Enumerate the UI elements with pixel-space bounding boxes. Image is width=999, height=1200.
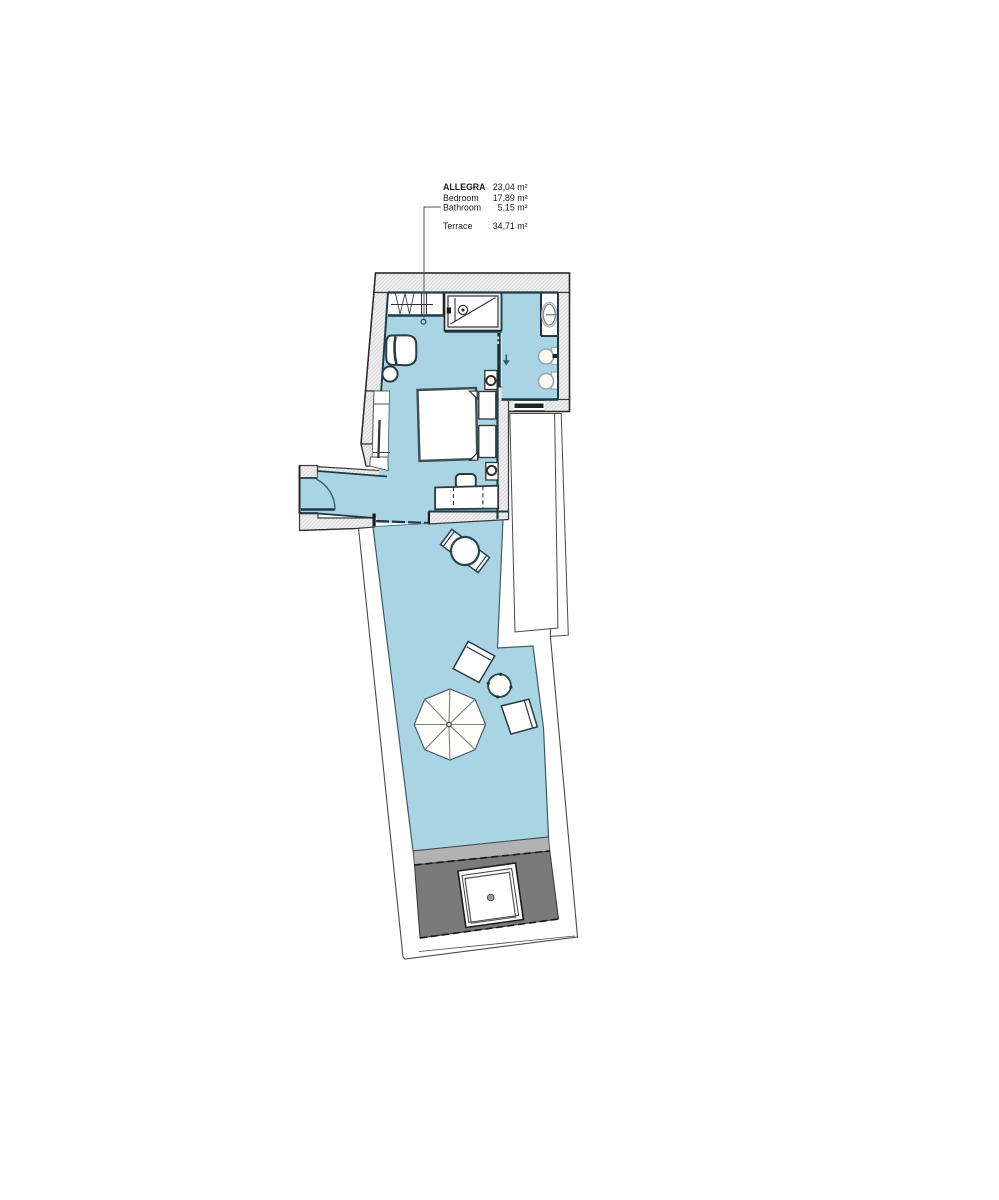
svg-text:Terrace: Terrace	[443, 221, 472, 231]
svg-text:23,04 m²: 23,04 m²	[493, 182, 528, 192]
svg-text:Bathroom: Bathroom	[443, 202, 481, 212]
svg-text:5,15 m²: 5,15 m²	[498, 202, 528, 212]
svg-text:Bedroom: Bedroom	[443, 193, 479, 203]
svg-text:17,89 m²: 17,89 m²	[493, 193, 528, 203]
svg-text:34,71 m²: 34,71 m²	[493, 221, 528, 231]
svg-text:ALLEGRA: ALLEGRA	[443, 182, 486, 192]
